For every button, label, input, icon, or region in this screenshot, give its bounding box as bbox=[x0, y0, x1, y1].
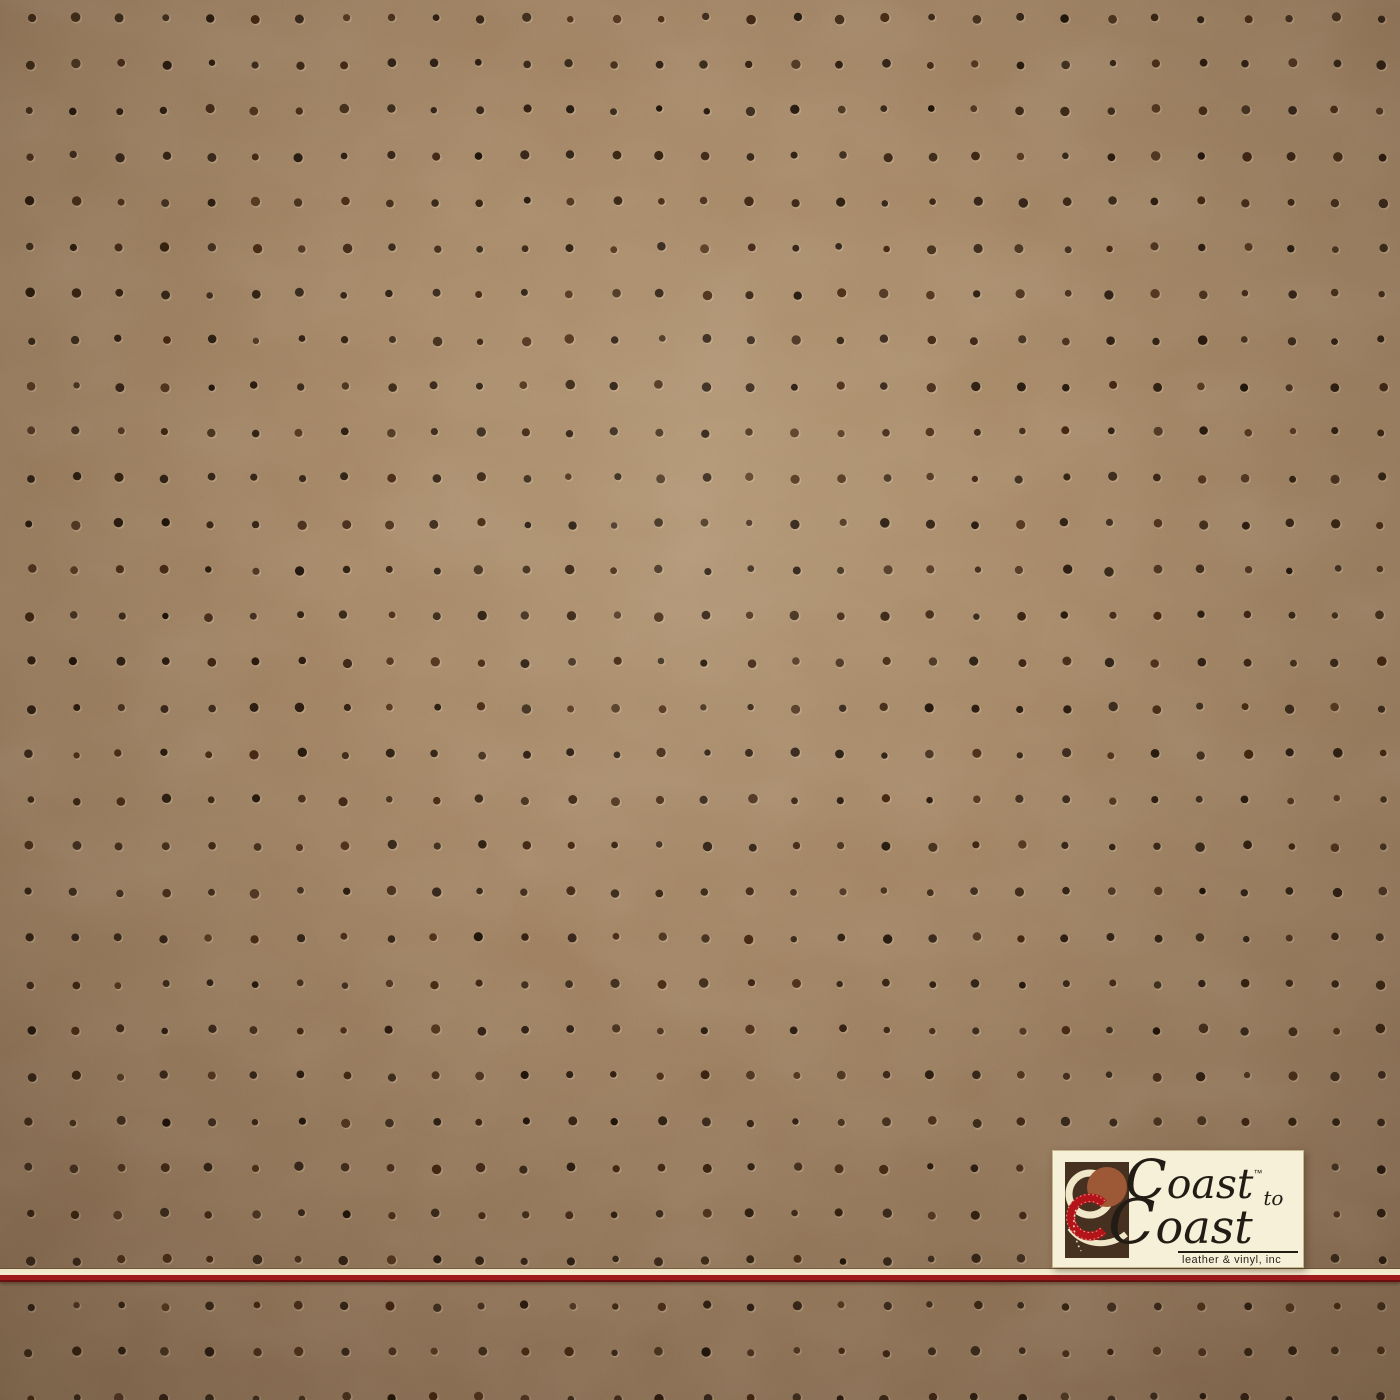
logo-line-2: Coast bbox=[1108, 1189, 1253, 1254]
logo-underline bbox=[1178, 1251, 1298, 1253]
logo-word-to: to bbox=[1263, 1186, 1283, 1210]
brand-logo-plate: Coast™to Coast leather & vinyl, inc bbox=[1052, 1150, 1304, 1268]
logo-trademark: ™ bbox=[1253, 1168, 1262, 1178]
vinyl-swatch-photo: Coast™to Coast leather & vinyl, inc bbox=[0, 0, 1400, 1400]
logo-tagline: leather & vinyl, inc bbox=[1182, 1254, 1281, 1266]
logo-word-coast-2: Coast bbox=[1108, 1189, 1253, 1254]
divider-stripe-red bbox=[0, 1275, 1400, 1282]
